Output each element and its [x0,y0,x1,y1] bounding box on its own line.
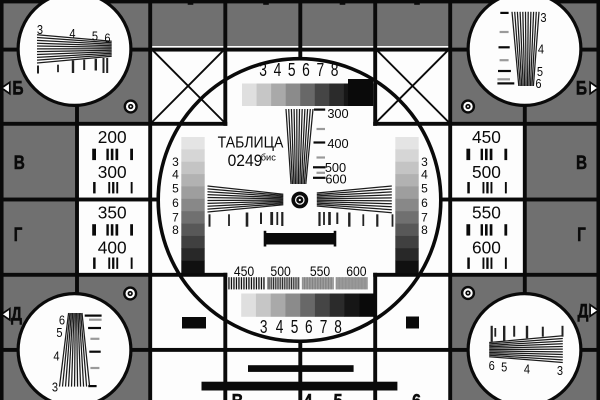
svg-text:550: 550 [310,263,330,279]
svg-text:4: 4 [421,168,428,182]
svg-text:6: 6 [535,76,541,91]
svg-text:6: 6 [305,317,313,337]
svg-text:6: 6 [421,196,428,210]
svg-text:5: 5 [334,390,343,400]
svg-text:8: 8 [421,223,428,237]
svg-text:5: 5 [421,181,428,195]
svg-text:5: 5 [291,317,299,337]
svg-text:4: 4 [69,26,75,41]
svg-text:Б: Б [576,77,587,99]
svg-text:Д: Д [578,300,589,322]
svg-text:бис: бис [261,152,276,162]
svg-text:400: 400 [327,136,348,151]
svg-text:В: В [14,151,25,173]
svg-text:Г: Г [577,223,586,245]
svg-text:600: 600 [472,238,501,258]
svg-text:8: 8 [334,317,342,337]
svg-text:5: 5 [288,60,296,80]
svg-text:4: 4 [276,317,284,337]
svg-text:3: 3 [259,60,267,80]
svg-text:4: 4 [53,348,59,363]
svg-text:3: 3 [52,380,58,395]
svg-text:В: В [232,390,244,400]
svg-text:7: 7 [320,317,328,337]
svg-text:5: 5 [172,181,179,195]
svg-text:5: 5 [501,359,507,374]
svg-text:5: 5 [92,29,98,44]
svg-text:0249: 0249 [228,152,263,171]
svg-text:ТАБЛИЦА: ТАБЛИЦА [218,135,284,152]
svg-text:3: 3 [557,363,563,378]
svg-text:6: 6 [489,358,495,373]
svg-text:Д: Д [11,303,22,325]
svg-text:5: 5 [56,325,62,340]
svg-text:300: 300 [327,106,348,121]
svg-text:3: 3 [540,10,546,25]
svg-text:4: 4 [524,361,530,376]
svg-text:300: 300 [98,162,127,182]
svg-text:3: 3 [260,317,268,337]
svg-text:600: 600 [346,263,366,279]
svg-text:200: 200 [98,127,127,147]
svg-text:6: 6 [302,60,310,80]
svg-text:4: 4 [274,60,282,80]
svg-text:350: 350 [98,203,127,223]
svg-text:6: 6 [412,390,421,400]
svg-text:6: 6 [104,31,110,46]
svg-text:3: 3 [37,22,43,37]
svg-text:500: 500 [270,263,290,279]
svg-text:4: 4 [538,41,544,56]
svg-text:В: В [576,151,587,173]
svg-text:8: 8 [331,60,339,80]
svg-text:600: 600 [325,171,346,186]
svg-text:4: 4 [304,390,313,400]
svg-text:450: 450 [472,127,501,147]
svg-text:400: 400 [98,238,127,258]
svg-text:6: 6 [172,196,179,210]
svg-text:450: 450 [234,263,254,279]
svg-text:Г: Г [14,223,23,245]
svg-text:Б: Б [12,77,23,99]
svg-text:7: 7 [316,60,324,80]
svg-text:550: 550 [472,203,501,223]
svg-text:500: 500 [472,162,501,182]
svg-text:8: 8 [172,223,179,237]
svg-text:4: 4 [172,168,179,182]
